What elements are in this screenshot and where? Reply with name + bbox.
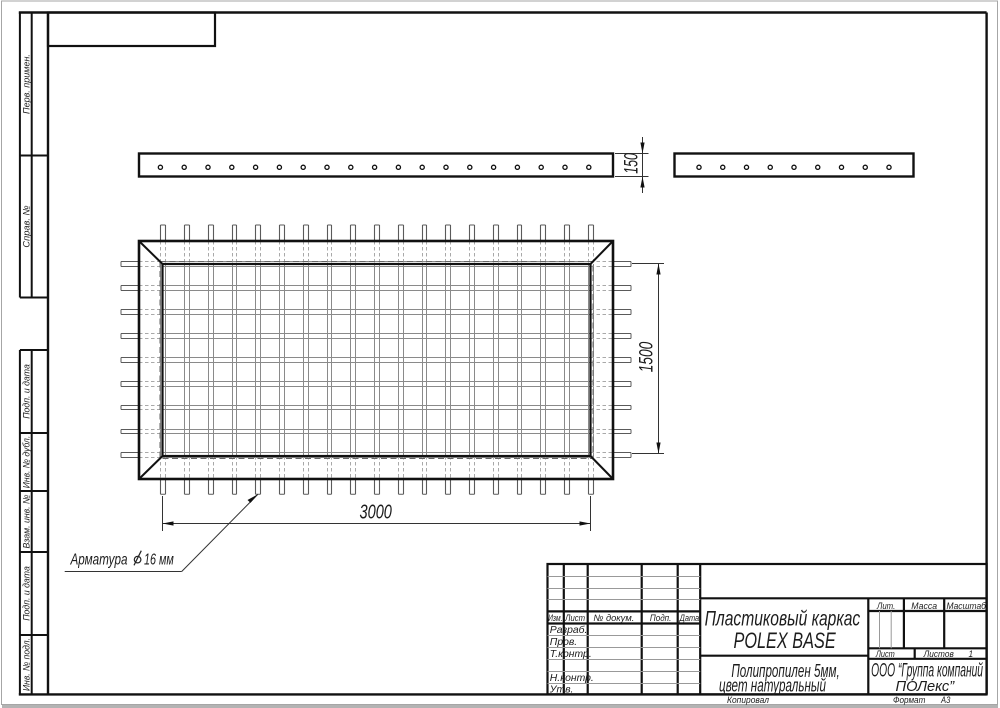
svg-text:Масштаб: Масштаб	[946, 600, 986, 610]
svg-text:150: 150	[621, 153, 642, 174]
svg-text:Утв.: Утв.	[549, 685, 574, 696]
svg-text:Н.контр.: Н.контр.	[550, 673, 594, 684]
svg-text:№ докум.: № докум.	[593, 613, 634, 623]
svg-text:Подп. и дата: Подп. и дата	[21, 566, 31, 621]
svg-text:Листов: Листов	[923, 648, 955, 659]
svg-text:Разраб.: Разраб.	[550, 624, 588, 636]
svg-text:Дата: Дата	[679, 612, 700, 623]
svg-text:Лит.: Лит.	[876, 600, 895, 611]
svg-text:Копировал: Копировал	[727, 694, 769, 705]
svg-text:Взам. инв. №: Взам. инв. №	[21, 494, 31, 548]
svg-text:Инв. № дубл.: Инв. № дубл.	[21, 436, 32, 488]
svg-text:Лист: Лист	[875, 648, 895, 659]
svg-text:Пластиковый каркас: Пластиковый каркас	[705, 606, 861, 630]
svg-text:1: 1	[968, 648, 973, 659]
svg-text:Пров.: Пров.	[550, 637, 577, 648]
svg-text:Перв. примен.: Перв. примен.	[21, 54, 31, 114]
svg-text:16 мм: 16 мм	[144, 551, 174, 568]
svg-text:Подп.: Подп.	[650, 612, 672, 623]
svg-text:А3: А3	[940, 694, 950, 705]
svg-text:Арматура: Арматура	[70, 551, 128, 568]
svg-text:Изм.: Изм.	[548, 613, 562, 623]
svg-text:POLEX BASE: POLEX BASE	[733, 629, 836, 654]
svg-text:Подп. и дата: Подп. и дата	[21, 364, 31, 419]
svg-text:ПОЛекс”: ПОЛекс”	[895, 679, 955, 695]
svg-text:Т.контр.: Т.контр.	[550, 649, 592, 660]
svg-text:Формат: Формат	[893, 694, 925, 705]
svg-text:3000: 3000	[360, 500, 392, 523]
svg-text:1500: 1500	[635, 341, 657, 372]
svg-text:Справ. №: Справ. №	[20, 205, 31, 247]
svg-text:Лист: Лист	[564, 612, 585, 623]
svg-text:Инв. № подл.: Инв. № подл.	[21, 638, 32, 691]
svg-text:Масса: Масса	[911, 601, 937, 611]
svg-text:цвет натуральный: цвет натуральный	[719, 676, 826, 696]
